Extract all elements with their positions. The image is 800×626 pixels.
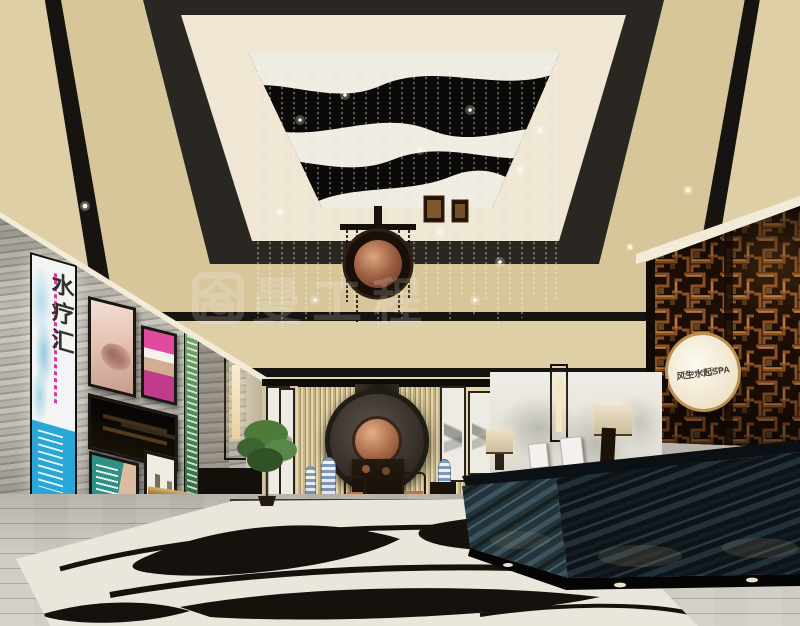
- spa-lobby-scene: 水疗汇: [0, 0, 800, 626]
- reception-desk: [0, 0, 800, 626]
